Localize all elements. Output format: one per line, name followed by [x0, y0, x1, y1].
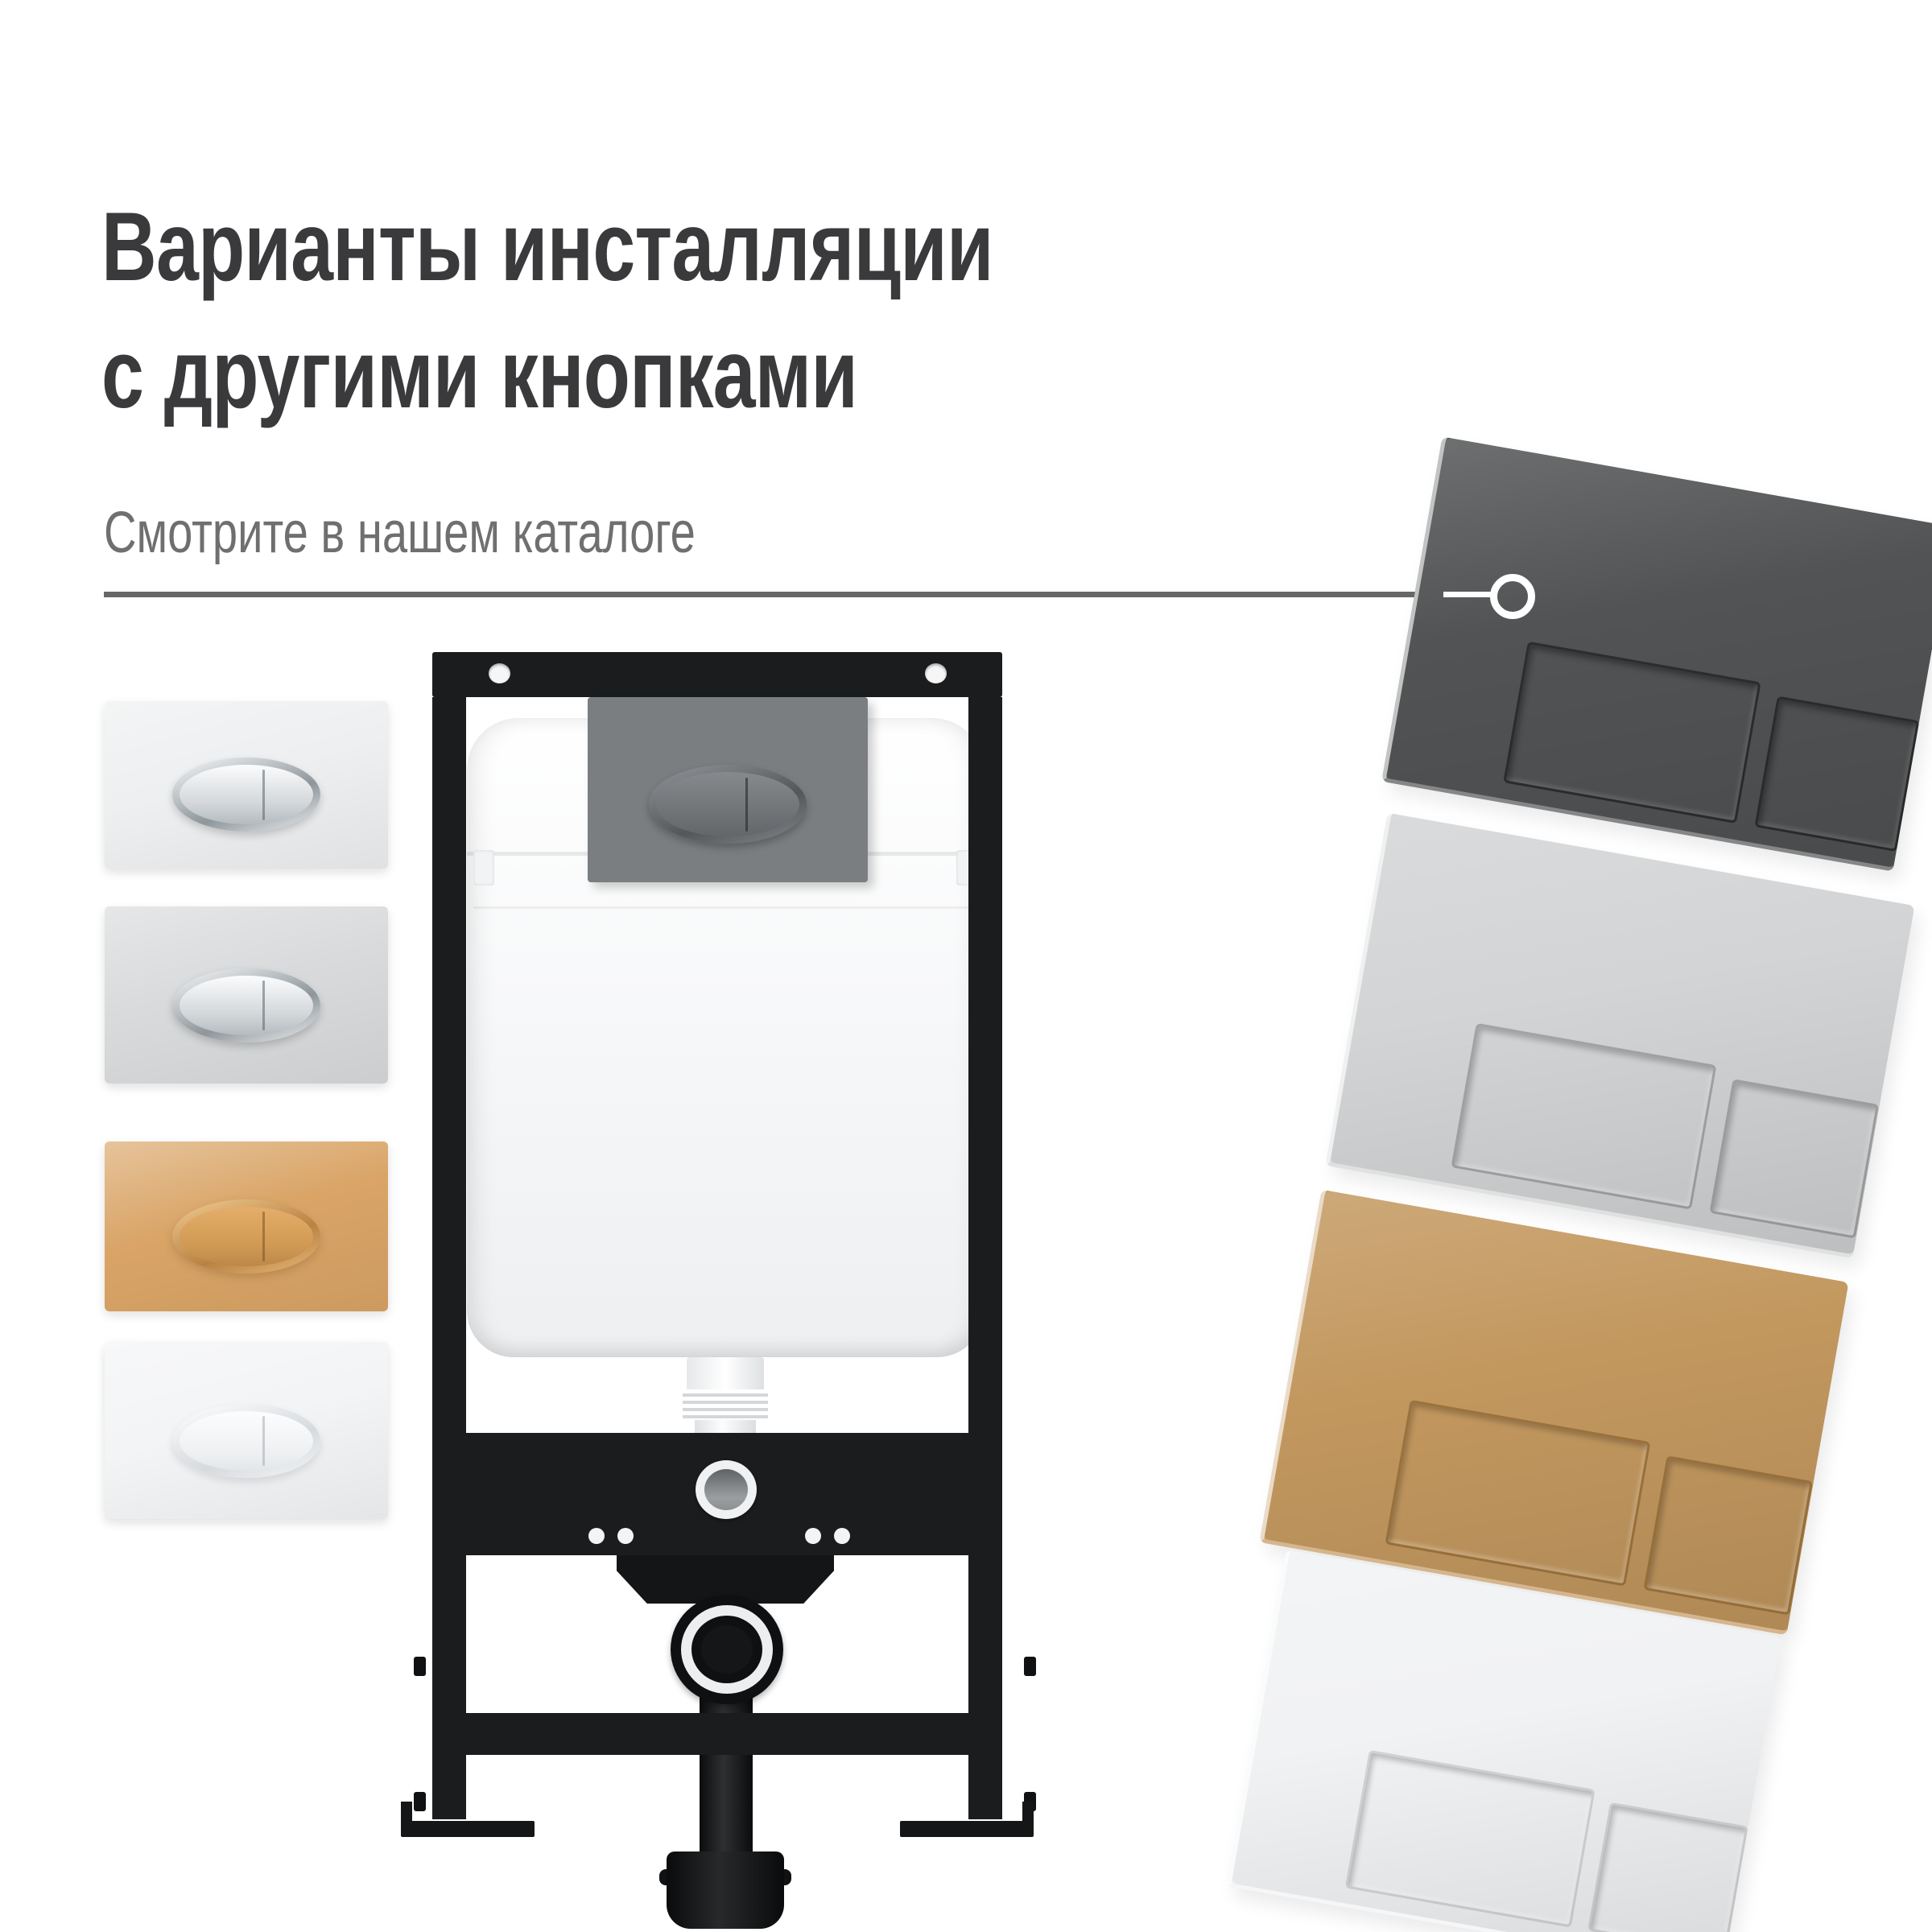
flush-pipe-thread: [683, 1389, 768, 1422]
mount-hole: [805, 1528, 821, 1544]
tank-side-clip: [473, 850, 494, 885]
left-plate-gray-chrome: [105, 906, 388, 1084]
callout-ring-icon: [1490, 574, 1535, 619]
frame-screw-hole: [925, 663, 947, 683]
frame-foot-left: [401, 1821, 535, 1837]
mount-hole: [834, 1528, 850, 1544]
divider-line: [104, 592, 1451, 597]
promo-canvas: Варианты инсталляции с другими кнопками …: [0, 0, 1932, 1932]
flush-button-small: [1754, 696, 1919, 852]
flush-button-small: [1644, 1455, 1814, 1615]
mounted-access-plate-gray: [588, 697, 868, 882]
frame-foot-tab: [401, 1802, 412, 1823]
oval-flush-button-gray: [649, 765, 807, 844]
waste-outlet-elbow: [671, 1595, 783, 1704]
left-plate-gold: [105, 1141, 388, 1311]
side-bolt: [1024, 1657, 1036, 1676]
floor-drain-socket: [667, 1851, 784, 1929]
flush-button-small: [1588, 1802, 1748, 1932]
flush-pipe-collar: [687, 1357, 764, 1391]
side-bolt: [414, 1657, 426, 1676]
frame-rail-right: [968, 697, 1002, 1819]
oval-flush-button-white: [172, 1404, 320, 1478]
flush-button-small: [1710, 1079, 1880, 1238]
frame-top-bar: [432, 652, 1002, 697]
page-title-line-2: с другими кнопками: [101, 317, 857, 430]
frame-foot-right: [900, 1821, 1034, 1837]
mount-hole: [588, 1528, 605, 1544]
page-title-line-1: Варианты инсталляции: [101, 190, 993, 303]
left-plate-white-chrome: [105, 701, 388, 869]
right-plate-chrome: [1325, 813, 1914, 1259]
callout-line: [1443, 592, 1493, 597]
mount-hole: [617, 1528, 634, 1544]
frame-rail-left: [432, 697, 466, 1819]
page-subtitle: Смотрите в нашем каталоге: [104, 500, 696, 566]
side-bolt: [414, 1792, 426, 1811]
supply-port-icon: [696, 1460, 757, 1519]
left-plate-white: [105, 1342, 388, 1519]
oval-flush-button-gold: [172, 1199, 320, 1274]
frame-crossbar-lower: [465, 1713, 969, 1755]
oval-flush-button-chrome: [172, 968, 320, 1042]
frame-screw-hole: [489, 663, 510, 683]
frame-foot-tab: [1022, 1802, 1034, 1823]
oval-flush-button-chrome: [172, 758, 320, 832]
tank-seam: [473, 906, 977, 909]
right-plate-graphite: [1381, 436, 1932, 871]
